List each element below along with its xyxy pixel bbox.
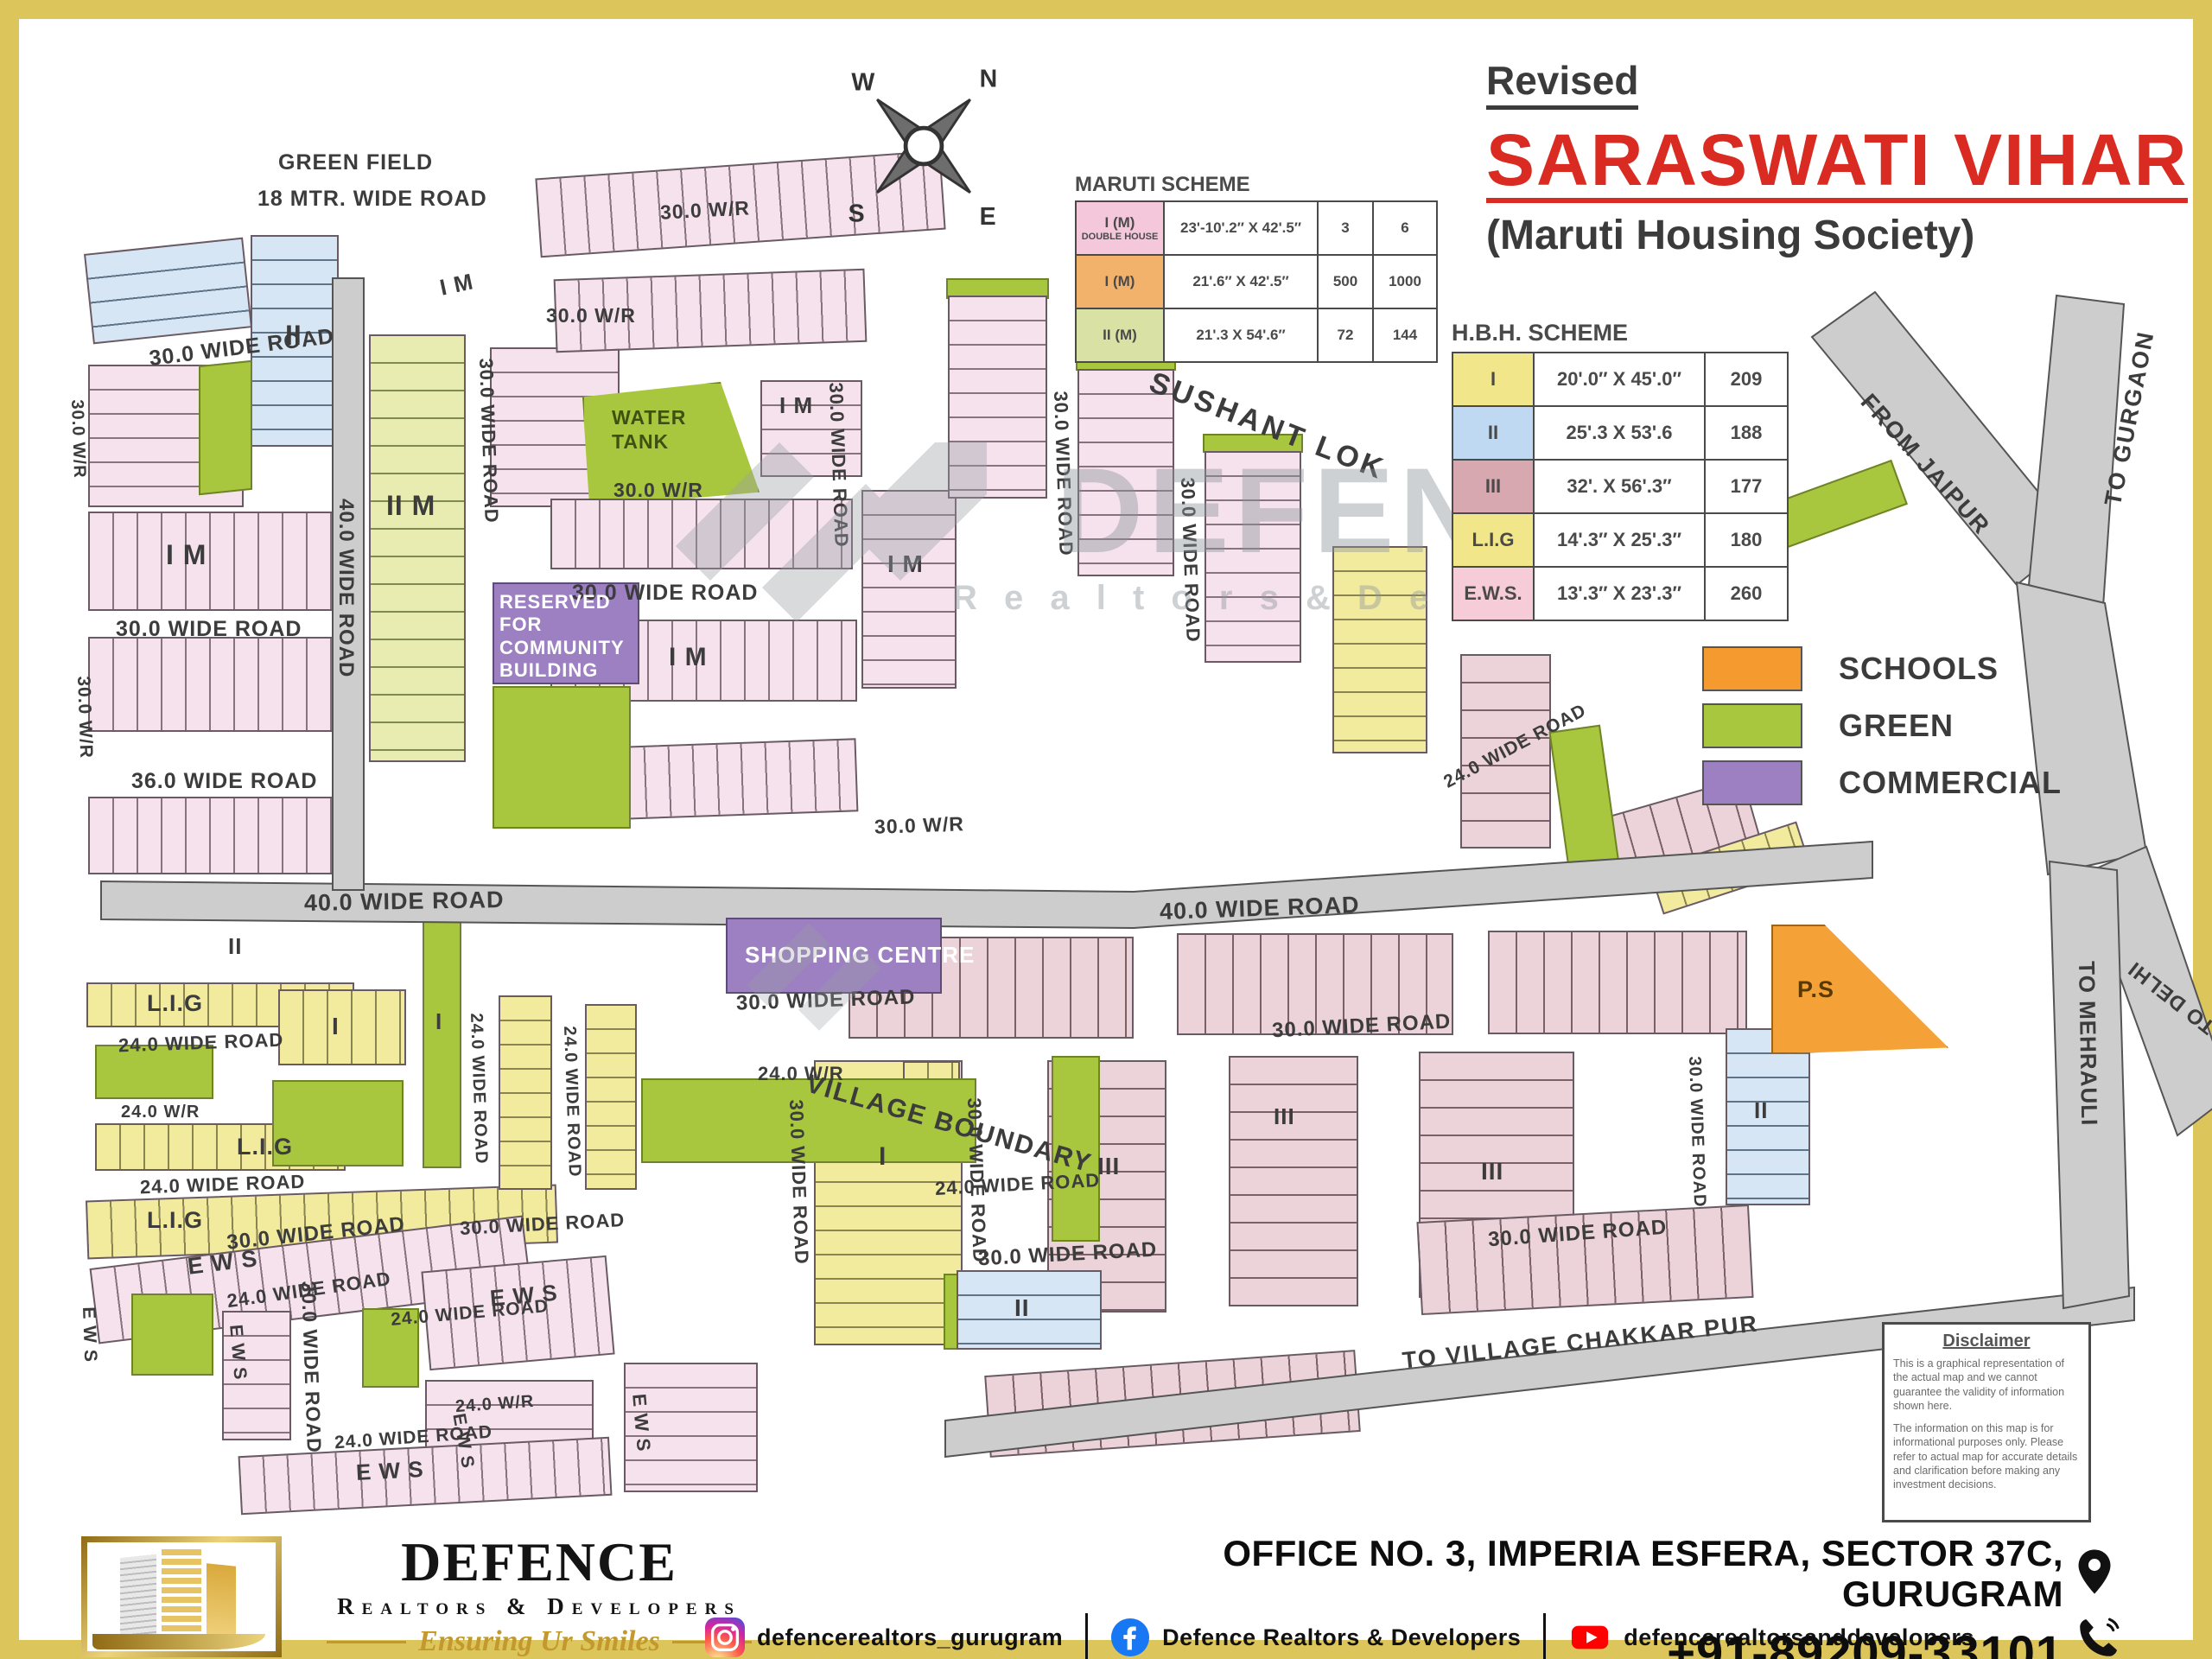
legend-item-green: GREEN bbox=[1702, 703, 2062, 748]
location-pin-icon bbox=[2075, 1547, 2113, 1597]
disclaimer-text: The information on this map is for infor… bbox=[1893, 1421, 2080, 1491]
road-label: 30.0 W/R bbox=[73, 676, 96, 759]
block-label: E W S bbox=[78, 1306, 100, 1363]
title-block: Revised SARASWATI VIHAR (Maruti Housing … bbox=[1486, 57, 2188, 259]
schools-swatch bbox=[1702, 646, 1802, 691]
table-row: II 25'.3 X 53'.6 188 bbox=[1452, 406, 1788, 460]
block-label: L.I.G bbox=[147, 1207, 203, 1234]
table-row: III 32'. X 56'.3″ 177 bbox=[1452, 460, 1788, 513]
table-row: I (M) 21'.6″ X 42'.5″ 500 1000 bbox=[1076, 255, 1437, 308]
brand-name: DEFENCE bbox=[297, 1535, 781, 1590]
road-label: 30.0 W/R bbox=[659, 196, 750, 224]
tagline-rule bbox=[327, 1641, 406, 1643]
legend: SCHOOLS GREEN COMMERCIAL bbox=[1702, 646, 2062, 817]
page-title: SARASWATI VIHAR bbox=[1486, 122, 2188, 203]
road-label: 30.0 W/R bbox=[613, 479, 703, 502]
legend-item-commercial: COMMERCIAL bbox=[1702, 760, 2062, 805]
phone-icon bbox=[2075, 1616, 2120, 1659]
water-tank-label: WATER TANK bbox=[612, 406, 715, 454]
office-address: OFFICE NO. 3, IMPERIA ESFERA, SECTOR 37C… bbox=[1223, 1533, 2063, 1659]
layout-map-page: W N S E Revised SARASWATI VIHAR (Maruti … bbox=[0, 0, 2212, 1659]
road-label: TO MEHRAULI bbox=[2073, 961, 2102, 1127]
shopping-centre-label: SHOPPING CENTRE bbox=[745, 942, 975, 969]
community-building-label: RESERVED FOR COMMUNITY BUILDING bbox=[499, 591, 633, 683]
address-line: GURUGRAM bbox=[1223, 1573, 2063, 1614]
block-label: I bbox=[435, 1008, 442, 1035]
commercial-swatch bbox=[1702, 760, 1802, 805]
disclaimer-title: Disclaimer bbox=[1893, 1332, 2080, 1351]
green-field-label: GREEN FIELD bbox=[278, 150, 433, 175]
road-label: 30.0 W/R bbox=[874, 812, 965, 839]
road-label: 18 MTR. WIDE ROAD bbox=[257, 187, 487, 212]
hbh-scheme-table: I 20'.0″ X 45'.0″ 209 II 25'.3 X 53'.6 1… bbox=[1452, 352, 1789, 621]
ps-label: P.S bbox=[1797, 976, 1834, 1003]
block-label: II M bbox=[386, 490, 435, 522]
block-label: I bbox=[879, 1142, 887, 1172]
block-label: II bbox=[228, 933, 242, 960]
block-label: II bbox=[1754, 1097, 1768, 1124]
block-label: II bbox=[285, 320, 302, 352]
compass-e: E bbox=[980, 203, 996, 228]
road-label: 30.0 W/R bbox=[546, 304, 636, 327]
maruti-scheme-title: MARUTI SCHEME bbox=[1075, 173, 1438, 197]
block-label: I M bbox=[887, 550, 924, 578]
block-label: III bbox=[1481, 1158, 1503, 1185]
address-line: OFFICE NO. 3, IMPERIA ESFERA, SECTOR 37C… bbox=[1223, 1533, 2063, 1573]
logo-swoosh bbox=[92, 1634, 265, 1649]
road-label: 24.0 W/R bbox=[758, 1063, 844, 1085]
table-row: I 20'.0″ X 45'.0″ 209 bbox=[1452, 353, 1788, 406]
logo-building bbox=[120, 1554, 156, 1641]
block-label: L.I.G bbox=[237, 1134, 293, 1160]
block-label: E W S bbox=[355, 1456, 424, 1486]
road-label: 36.0 WIDE ROAD bbox=[131, 769, 317, 794]
block-label: III bbox=[1274, 1103, 1295, 1130]
revised-label: Revised bbox=[1486, 57, 1638, 110]
compass-n: N bbox=[980, 66, 998, 93]
compass-s: S bbox=[849, 200, 865, 227]
hbh-scheme: H.B.H. SCHEME I 20'.0″ X 45'.0″ 209 II 2… bbox=[1452, 320, 1789, 621]
logo-building bbox=[207, 1563, 236, 1643]
instagram-icon bbox=[705, 1618, 745, 1657]
block-label: I M bbox=[779, 392, 813, 419]
road-label: 30.0 WIDE ROAD bbox=[116, 617, 302, 642]
map-canvas: W N S E Revised SARASWATI VIHAR (Maruti … bbox=[19, 19, 2193, 1640]
disclaimer-text: This is a graphical representation of th… bbox=[1893, 1357, 2080, 1413]
green-swatch bbox=[1702, 703, 1802, 748]
table-row: L.I.G 14'.3″ X 25'.3″ 180 bbox=[1452, 513, 1788, 567]
disclaimer-box: Disclaimer This is a graphical represent… bbox=[1882, 1322, 2091, 1522]
instagram-link[interactable]: defencerealtors_gurugram bbox=[683, 1618, 1085, 1657]
table-row: II (M) 21'.3 X 54'.6″ 72 144 bbox=[1076, 308, 1437, 362]
block-label: I M bbox=[166, 539, 207, 571]
hbh-scheme-title: H.B.H. SCHEME bbox=[1452, 320, 1789, 346]
table-row: E.W.S. 13'.3″ X 23'.3″ 260 bbox=[1452, 567, 1788, 620]
phone-number: +91-89209-33101 bbox=[1223, 1624, 2063, 1659]
logo-building bbox=[162, 1549, 201, 1641]
maruti-scheme: MARUTI SCHEME I (M)DOUBLE HOUSE 23'-10'.… bbox=[1075, 173, 1438, 363]
compass-rose: W N S E bbox=[842, 64, 1006, 228]
facebook-icon bbox=[1110, 1618, 1150, 1657]
legend-item-schools: SCHOOLS bbox=[1702, 646, 2062, 691]
road-label: 30.0 W/R bbox=[67, 399, 89, 479]
block-label: III bbox=[1097, 1153, 1120, 1180]
road-label: 40.0 WIDE ROAD bbox=[304, 887, 505, 917]
maruti-scheme-table: I (M)DOUBLE HOUSE 23'-10'.2″ X 42'.5″ 3 … bbox=[1075, 200, 1438, 363]
road-label: 24.0 W/R bbox=[121, 1103, 200, 1122]
compass-w: W bbox=[851, 68, 874, 96]
block-label: I M bbox=[669, 643, 708, 672]
block-label: L.I.G bbox=[147, 990, 203, 1017]
block-label: I bbox=[332, 1013, 340, 1040]
company-logo bbox=[81, 1536, 282, 1657]
page-subtitle: (Maruti Housing Society) bbox=[1486, 212, 2188, 259]
table-row: I (M)DOUBLE HOUSE 23'-10'.2″ X 42'.5″ 3 … bbox=[1076, 201, 1437, 255]
road-label: 40.0 WIDE ROAD bbox=[334, 499, 358, 677]
block-label: II bbox=[1014, 1294, 1030, 1322]
